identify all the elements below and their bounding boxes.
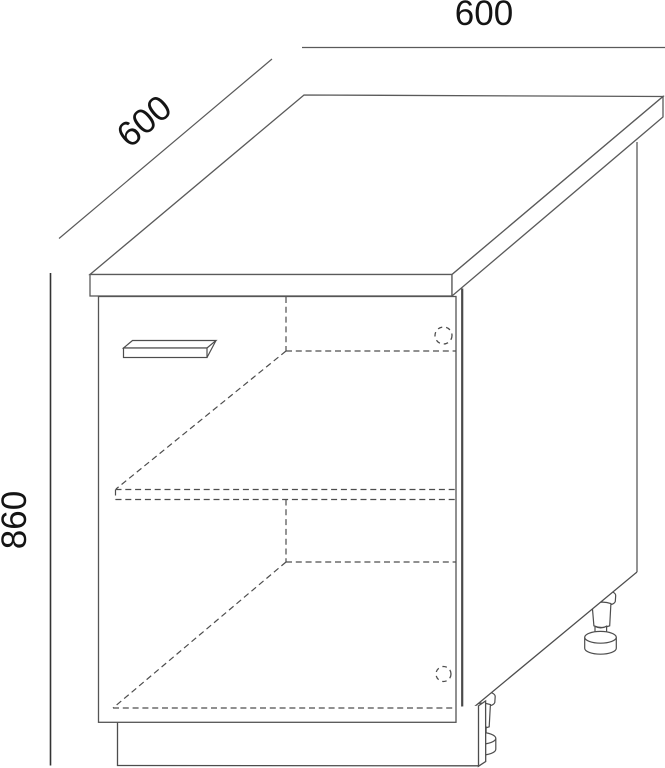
svg-text:860: 860	[0, 491, 34, 549]
svg-text:600: 600	[455, 0, 513, 33]
